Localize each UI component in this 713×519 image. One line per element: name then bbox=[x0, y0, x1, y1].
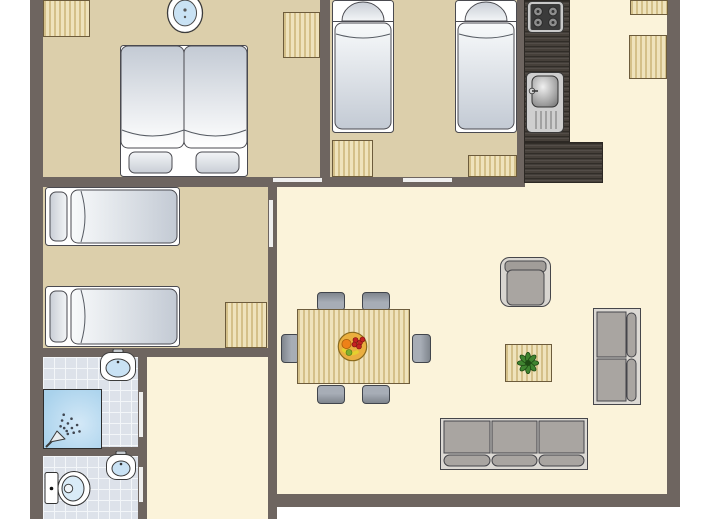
wardrobe-bedroom2-a bbox=[332, 140, 373, 177]
wardrobe-bedroom2-b bbox=[468, 155, 517, 177]
outer-wall-left bbox=[30, 0, 43, 519]
sofa-three-seat bbox=[440, 418, 588, 470]
kitchen-counter-ell bbox=[524, 142, 603, 183]
dining-chair-right bbox=[412, 334, 431, 363]
washbasin-bathroom bbox=[100, 349, 136, 381]
fruit-bowl bbox=[337, 331, 368, 362]
toilet bbox=[44, 470, 92, 507]
single-bed-d bbox=[45, 286, 180, 347]
shower bbox=[43, 389, 102, 449]
wardrobe-bedroom1-a bbox=[43, 0, 90, 37]
cabinet-right-b bbox=[629, 35, 667, 79]
floorplan bbox=[0, 0, 713, 519]
single-bed-c bbox=[45, 187, 180, 246]
hallway-floor bbox=[147, 357, 268, 519]
door-bedroom3 bbox=[269, 200, 273, 247]
single-bed-a bbox=[332, 0, 394, 133]
dining-chair-bottom-2 bbox=[362, 385, 390, 404]
washbasin-toilet bbox=[106, 451, 136, 480]
double-bed bbox=[120, 45, 248, 177]
single-bed-b bbox=[455, 0, 517, 133]
cabinet-right-a bbox=[630, 0, 668, 15]
sofa-two-seat bbox=[593, 308, 641, 405]
wall-bedroom3-south bbox=[43, 348, 277, 357]
door-bathroom bbox=[139, 392, 143, 437]
wardrobe-bedroom1-b bbox=[283, 12, 320, 58]
wardrobe-bedroom3 bbox=[225, 302, 267, 348]
door-toilet bbox=[139, 467, 143, 502]
door-bedroom1 bbox=[273, 178, 322, 182]
washbasin-bedroom1 bbox=[166, 0, 204, 34]
kitchen-sink bbox=[526, 72, 564, 133]
dining-chair-bottom-1 bbox=[317, 385, 345, 404]
armchair bbox=[500, 257, 551, 307]
plant bbox=[517, 352, 539, 374]
outer-wall-bottom bbox=[268, 494, 680, 507]
stove bbox=[527, 1, 564, 33]
outer-wall-right bbox=[667, 0, 680, 507]
wall-bedroom1-bedroom2 bbox=[320, 0, 330, 177]
door-bedroom2 bbox=[403, 178, 452, 182]
